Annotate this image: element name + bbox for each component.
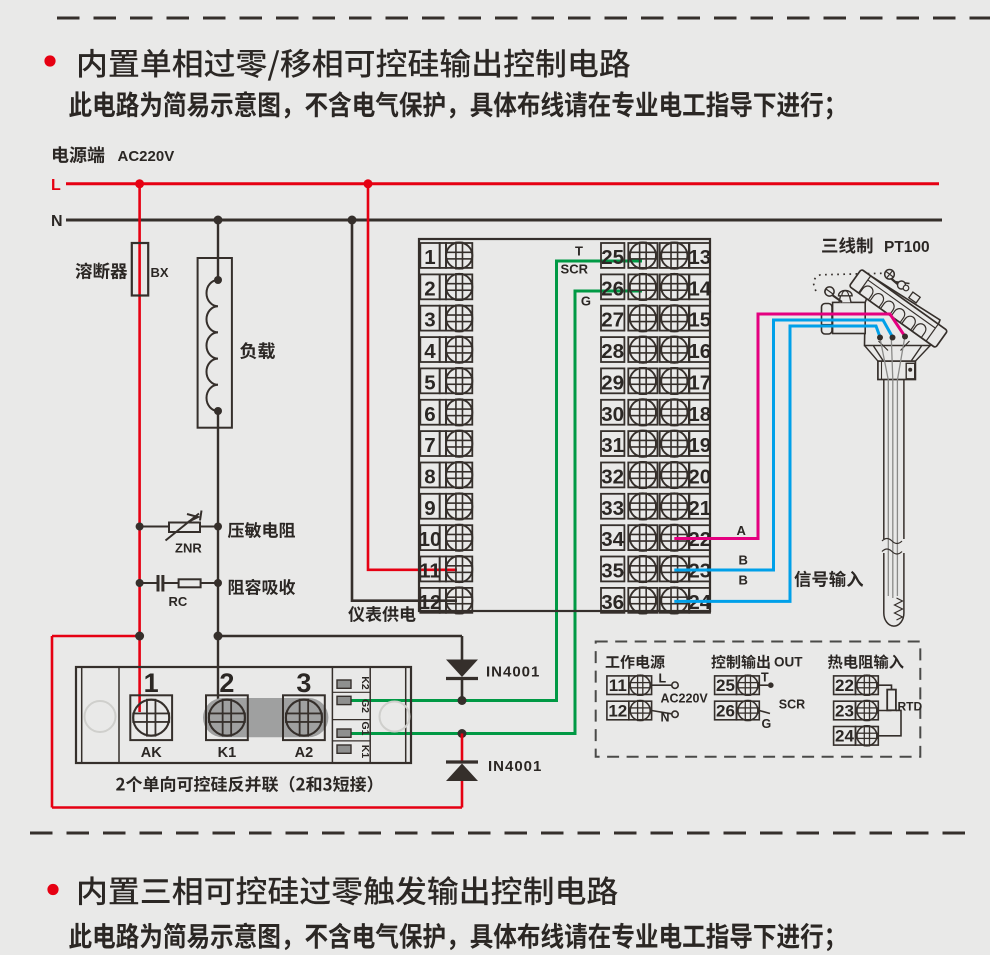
svg-text:6: 6 <box>424 403 435 426</box>
svg-text:22: 22 <box>835 676 854 695</box>
svg-text:12: 12 <box>419 591 442 614</box>
svg-text:K1: K1 <box>359 745 371 759</box>
svg-text:L: L <box>51 177 61 194</box>
svg-text:25: 25 <box>601 246 624 269</box>
svg-text:SCR: SCR <box>779 698 805 712</box>
svg-text:N: N <box>51 213 63 230</box>
svg-text:AC220V: AC220V <box>661 692 709 706</box>
svg-text:G1: G1 <box>359 721 371 735</box>
svg-text:T: T <box>761 671 769 685</box>
svg-text:OUT: OUT <box>774 655 803 670</box>
svg-text:BX: BX <box>151 265 169 280</box>
svg-text:SCR: SCR <box>561 262 589 277</box>
svg-text:ZNR: ZNR <box>175 541 202 556</box>
svg-text:35: 35 <box>601 560 624 583</box>
svg-text:PT100: PT100 <box>884 239 930 256</box>
svg-text:RC: RC <box>169 594 188 609</box>
svg-text:13: 13 <box>688 246 711 269</box>
svg-text:K2: K2 <box>359 676 371 690</box>
svg-text:11: 11 <box>609 676 627 695</box>
svg-text:IN4001: IN4001 <box>488 758 542 775</box>
svg-text:20: 20 <box>688 465 711 488</box>
svg-text:2: 2 <box>424 277 435 300</box>
svg-text:17: 17 <box>688 371 711 394</box>
svg-text:24: 24 <box>835 727 854 746</box>
svg-text:2: 2 <box>219 668 234 698</box>
svg-text:1: 1 <box>424 246 435 269</box>
svg-text:19: 19 <box>688 434 711 457</box>
svg-text:N: N <box>661 711 670 725</box>
svg-text:10: 10 <box>419 528 442 551</box>
svg-text:14: 14 <box>688 277 711 300</box>
svg-text:32: 32 <box>601 465 624 488</box>
svg-text:L: L <box>659 672 667 686</box>
svg-text:23: 23 <box>835 701 854 720</box>
svg-text:AC220V: AC220V <box>118 148 175 165</box>
svg-text:IN4001: IN4001 <box>486 664 540 681</box>
svg-text:G: G <box>581 294 591 309</box>
svg-text:G: G <box>762 717 772 731</box>
svg-text:18: 18 <box>688 403 711 426</box>
svg-text:K1: K1 <box>218 745 237 761</box>
svg-text:34: 34 <box>601 528 624 551</box>
svg-text:27: 27 <box>601 309 624 332</box>
svg-text:B: B <box>739 573 748 588</box>
svg-text:25: 25 <box>716 676 735 695</box>
svg-text:3: 3 <box>296 668 311 698</box>
svg-text:33: 33 <box>601 497 624 520</box>
svg-text:9: 9 <box>424 497 435 520</box>
svg-text:G2: G2 <box>359 699 371 713</box>
svg-text:28: 28 <box>601 340 624 363</box>
svg-text:4: 4 <box>424 340 436 363</box>
svg-text:T: T <box>575 244 583 259</box>
svg-text:5: 5 <box>424 371 435 394</box>
svg-text:36: 36 <box>601 591 624 614</box>
svg-text:3: 3 <box>424 309 435 332</box>
svg-text:30: 30 <box>601 403 624 426</box>
svg-text:11: 11 <box>419 560 441 583</box>
svg-text:A2: A2 <box>295 745 314 761</box>
svg-text:26: 26 <box>601 277 624 300</box>
svg-text:7: 7 <box>424 434 435 457</box>
svg-text:31: 31 <box>601 434 624 457</box>
svg-text:21: 21 <box>688 497 711 520</box>
svg-text:RTD: RTD <box>898 700 923 714</box>
svg-text:29: 29 <box>601 371 624 394</box>
svg-text:12: 12 <box>608 701 627 720</box>
svg-text:15: 15 <box>688 309 711 332</box>
svg-text:8: 8 <box>424 465 435 488</box>
svg-text:AK: AK <box>141 745 162 761</box>
svg-text:A: A <box>737 523 747 538</box>
svg-text:26: 26 <box>716 701 735 720</box>
svg-text:1: 1 <box>144 668 159 698</box>
svg-text:B: B <box>739 553 748 568</box>
svg-text:16: 16 <box>688 340 711 363</box>
